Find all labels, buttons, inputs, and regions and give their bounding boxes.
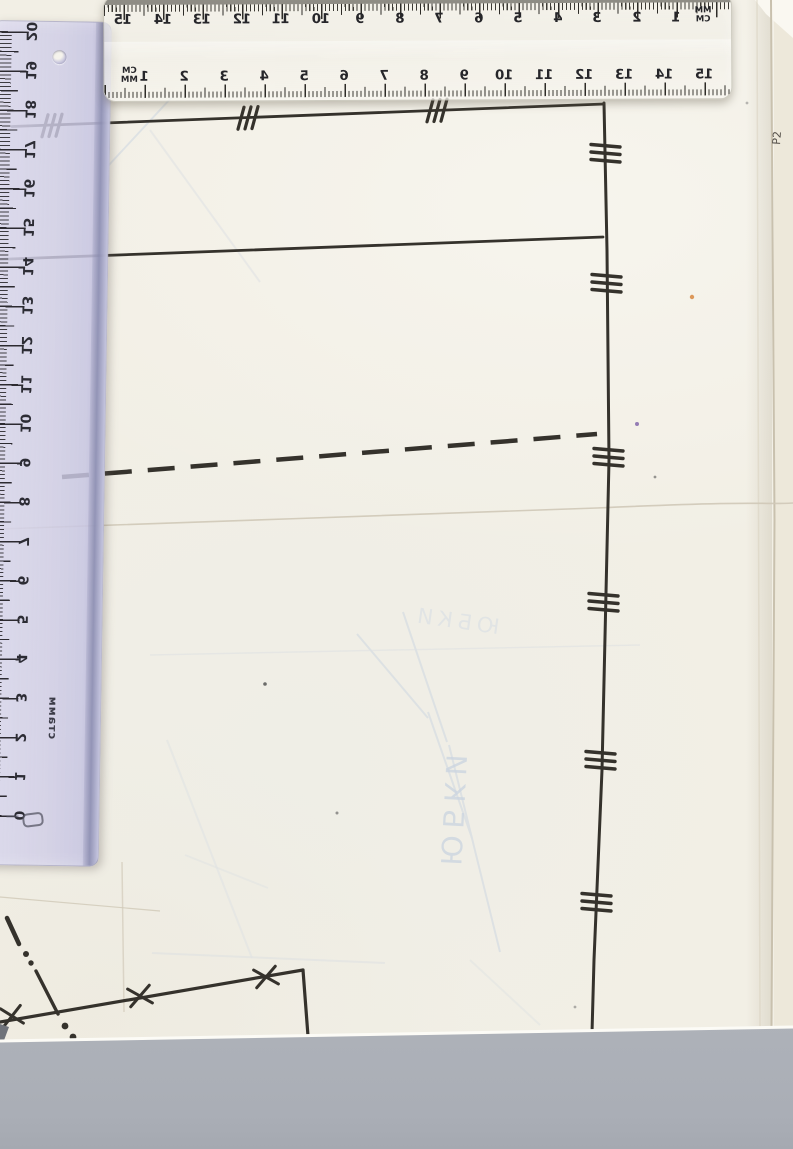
left-ruler-number: 8 [13,490,33,514]
bleedthrough-text-vertical: ЮБКИ [434,747,473,867]
top-ruler-lower-number: 1 [129,69,159,85]
left-ruler-number: 3 [10,686,30,710]
top-ruler-lower-number: 11 [529,67,559,83]
bleedthrough-text-diagonal: ЮБКИ [411,603,501,639]
top-ruler-lower-number: 8 [409,68,439,84]
ruler-emboss-logo [22,811,45,827]
top-ruler-lower-number: 3 [209,68,239,84]
top-ruler-upper-number: 11 [266,11,296,27]
top-ruler-lower-number: 4 [249,68,279,84]
ruler-hanging-hole [52,50,66,64]
top-ruler-upper-number: 3 [582,10,612,26]
top-ruler-upper-number: 4 [543,10,573,26]
top-ruler-upper-number: 13 [187,12,217,28]
top-ruler-upper-number: 1 [661,9,691,25]
fold-creases [0,503,793,1012]
left-ruler-number: 11 [15,372,35,396]
top-ruler-lower-number: 13 [609,67,639,83]
paper-edge-strip [774,0,793,1030]
bleedthrough-lines [108,97,640,1025]
left-ruler-number: 14 [17,255,37,279]
top-ruler-lower-number: 5 [289,68,319,84]
top-ruler-upper-number: 15 [108,12,138,28]
top-ruler-lower-number: 9 [449,67,479,83]
left-ruler-number: 16 [18,176,38,200]
horizontal-ruler-lower-ticks [104,82,732,98]
top-ruler-lower-number: 2 [169,69,199,85]
top-ruler-lower-number: 7 [369,68,399,84]
paper-edge-highlight [0,1027,793,1041]
scanned-sewing-pattern: Р2 ЮБКИ ЮБКИ [0,0,793,1149]
left-ruler-number: 7 [13,529,33,553]
left-ruler-number: 1 [9,764,29,788]
ruler-brand-text: стамм [0,716,59,739]
left-ruler-number: 12 [16,333,36,357]
pattern-drawing: Р2 ЮБКИ ЮБКИ [0,0,793,1149]
top-ruler-lower-number: 14 [649,66,679,82]
top-ruler-lower-number: 6 [329,68,359,84]
horizontal-ruler: 151413121110987654321 MM CM CM MM 123456… [103,0,732,102]
top-ruler-upper-number: 8 [385,11,415,27]
top-ruler-lower-number: 10 [489,67,519,83]
dart-marks [7,918,58,1014]
left-ruler-number: 17 [19,137,39,161]
left-ruler-number: 9 [14,451,34,475]
ruler-plastic-sheen [104,39,731,60]
left-ruler-number: 10 [14,411,34,435]
top-ruler-upper-number: 9 [345,11,375,27]
left-ruler-number: 15 [18,215,38,239]
left-ruler-number: 19 [20,59,40,83]
top-ruler-upper-number: 7 [424,10,454,26]
top-ruler-lower-number: 12 [569,67,599,83]
top-ruler-upper-number: 12 [227,11,257,27]
vertical-ruler: 20191817161514131211109876543210 стамм [0,20,112,867]
ruler-emboss-stub [6,815,18,817]
unit-label-cm: CM [690,15,716,24]
edge-print-mark: Р2 [770,131,784,146]
vertical-ruler-numbers: 20191817161514131211109876543210 [0,21,111,23]
left-ruler-number: 6 [12,568,32,592]
top-ruler-lower-number: 15 [689,66,719,82]
side-seam-notches [582,145,623,912]
top-ruler-upper-number: 10 [306,11,336,27]
top-ruler-upper-number: 14 [148,12,178,28]
left-ruler-number: 20 [21,20,41,44]
upper-scale-unit-label: MM CM [690,6,716,23]
hem-x-marks [1,966,279,1026]
left-ruler-number: 18 [19,98,39,122]
top-ruler-upper-number: 2 [622,10,652,26]
left-ruler-number: 4 [11,647,31,671]
top-ruler-upper-number: 5 [503,10,533,26]
top-ruler-upper-number: 6 [464,10,494,26]
left-ruler-number: 5 [11,607,31,631]
horizontal-ruler-upper-numbers: 151413121110987654321 [104,9,731,28]
dashed-style-line [62,434,597,477]
left-ruler-number: 13 [16,294,36,318]
paper-specks [263,102,748,1009]
